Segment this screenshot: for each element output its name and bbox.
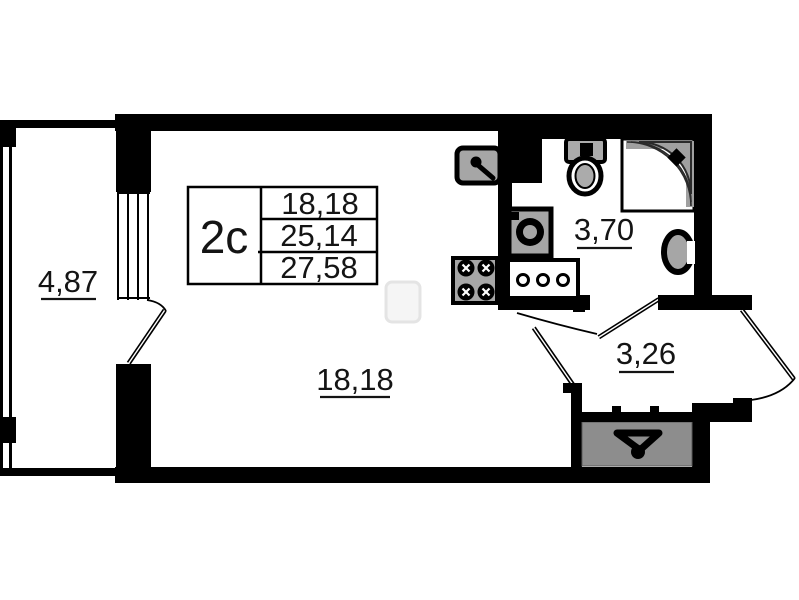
watermark-ghost (386, 282, 420, 322)
vent-shaft (498, 114, 542, 183)
legend-table: 2с 18,18 25,14 27,58 (188, 186, 377, 285)
bathroom-door-leaf (598, 298, 660, 339)
balcony-window-left (0, 147, 3, 417)
balcony-wall-bottom (0, 468, 116, 476)
entrance-mat (580, 406, 694, 466)
wall-segment (573, 300, 585, 312)
cooktop (453, 258, 497, 303)
wall-segment (694, 114, 712, 308)
floor-plan-canvas: 2с 18,18 25,14 27,58 4,87 18,18 3,70 3,2… (0, 0, 799, 600)
hall-door-arc (517, 313, 597, 334)
wall-segment (116, 114, 151, 193)
kitchen-sink (457, 148, 500, 183)
room-to-hall-door (517, 313, 597, 387)
wall-segment (658, 295, 752, 310)
legend-value-living: 18,18 (281, 186, 359, 221)
balcony-cap (0, 417, 16, 443)
balcony-wall-left-lower (0, 443, 3, 471)
legend-value-area: 25,14 (280, 218, 358, 253)
wall-segment (563, 383, 582, 393)
wall-segment (115, 467, 710, 483)
wall-segment (116, 364, 151, 483)
living-room-area-label: 18,18 (316, 362, 394, 397)
entrance-door-arc (751, 378, 795, 400)
wall-segment (542, 114, 712, 139)
shower-cabin (622, 139, 694, 211)
balcony-window-main (116, 192, 151, 300)
balcony-window-left (9, 147, 12, 417)
balcony-wall-left-lower (9, 443, 12, 471)
balcony-cap (0, 121, 16, 147)
entrance-door (741, 309, 795, 400)
balcony-door (128, 300, 167, 364)
legend-value-total: 27,58 (280, 250, 358, 285)
unit-type-label: 2с (200, 211, 249, 263)
washing-machine (509, 209, 551, 256)
wall-segment (692, 403, 710, 483)
kitchen-counter (508, 260, 578, 298)
hallway-area-label: 3,26 (616, 336, 676, 371)
wash-basin (664, 232, 695, 272)
bathroom-area-label: 3,70 (574, 212, 634, 247)
wall-segment (571, 385, 582, 470)
balcony-wall-top (0, 120, 117, 128)
toilet (566, 139, 605, 194)
balcony-area-label: 4,87 (38, 264, 98, 299)
